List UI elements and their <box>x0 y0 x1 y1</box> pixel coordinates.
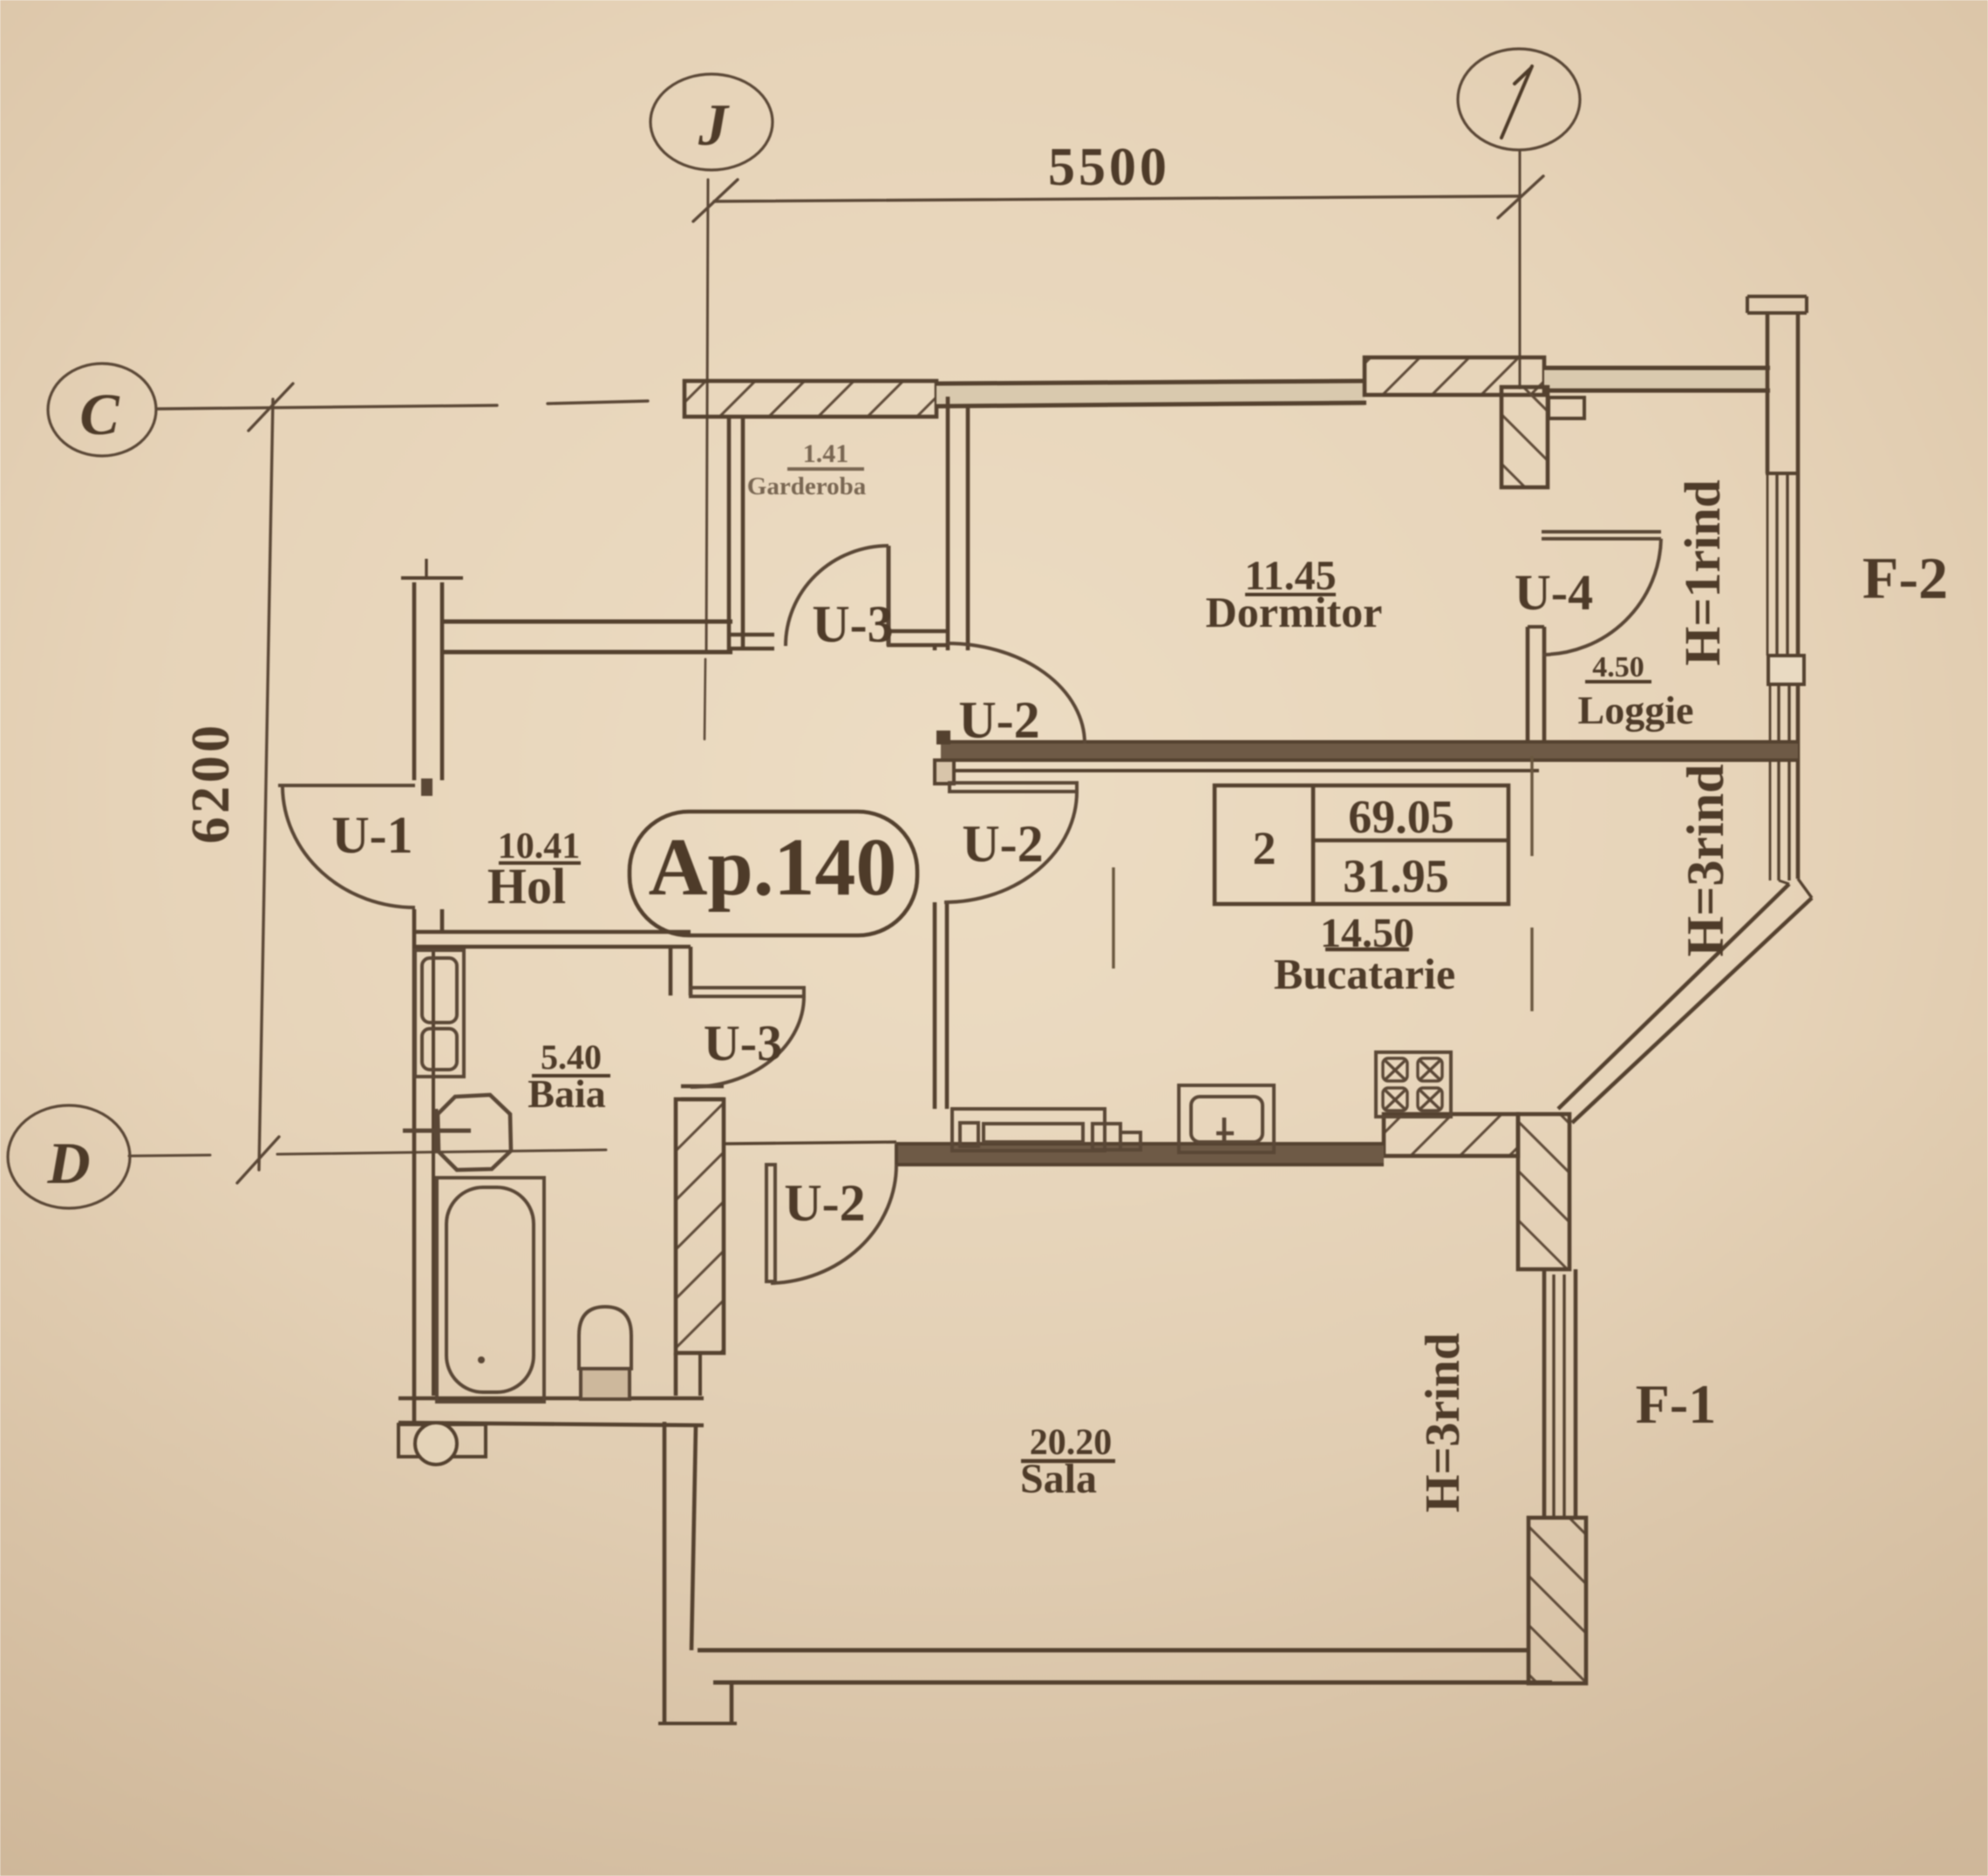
svg-text:Bucatarie: Bucatarie <box>1274 949 1455 998</box>
svg-text:U-1: U-1 <box>331 806 412 864</box>
svg-text:U-3: U-3 <box>704 1015 782 1071</box>
svg-text:Garderoba: Garderoba <box>747 472 867 500</box>
svg-text:F-2: F-2 <box>1862 545 1948 611</box>
svg-text:31.95: 31.95 <box>1343 850 1449 902</box>
svg-text:H=1rind: H=1rind <box>1674 479 1731 666</box>
svg-text:U-2: U-2 <box>958 691 1039 749</box>
svg-text:Ap.140: Ap.140 <box>649 822 897 913</box>
svg-text:Loggie: Loggie <box>1578 688 1694 732</box>
svg-text:H=3rind: H=3rind <box>1677 765 1734 957</box>
svg-text:5500: 5500 <box>1048 138 1170 197</box>
svg-text:Sala: Sala <box>1020 1456 1097 1502</box>
svg-text:J: J <box>698 92 730 158</box>
svg-text:Dormitor: Dormitor <box>1206 588 1383 636</box>
svg-text:Hol: Hol <box>487 858 566 914</box>
svg-text:4.50: 4.50 <box>1592 651 1644 683</box>
svg-text:F-1: F-1 <box>1636 1373 1716 1435</box>
svg-text:1.41: 1.41 <box>803 439 849 468</box>
svg-text:H=3rind: H=3rind <box>1416 1333 1470 1512</box>
svg-text:U-4: U-4 <box>1515 564 1593 621</box>
svg-text:U-2: U-2 <box>784 1174 865 1232</box>
svg-text:C: C <box>79 381 119 447</box>
svg-text:Baia: Baia <box>528 1071 605 1116</box>
svg-text:U-2: U-2 <box>962 815 1043 873</box>
svg-text:69.05: 69.05 <box>1348 791 1454 843</box>
svg-text:U-3: U-3 <box>812 595 893 653</box>
svg-text:2: 2 <box>1253 822 1277 874</box>
svg-text:6200: 6200 <box>181 722 241 844</box>
svg-text:D: D <box>46 1130 90 1196</box>
